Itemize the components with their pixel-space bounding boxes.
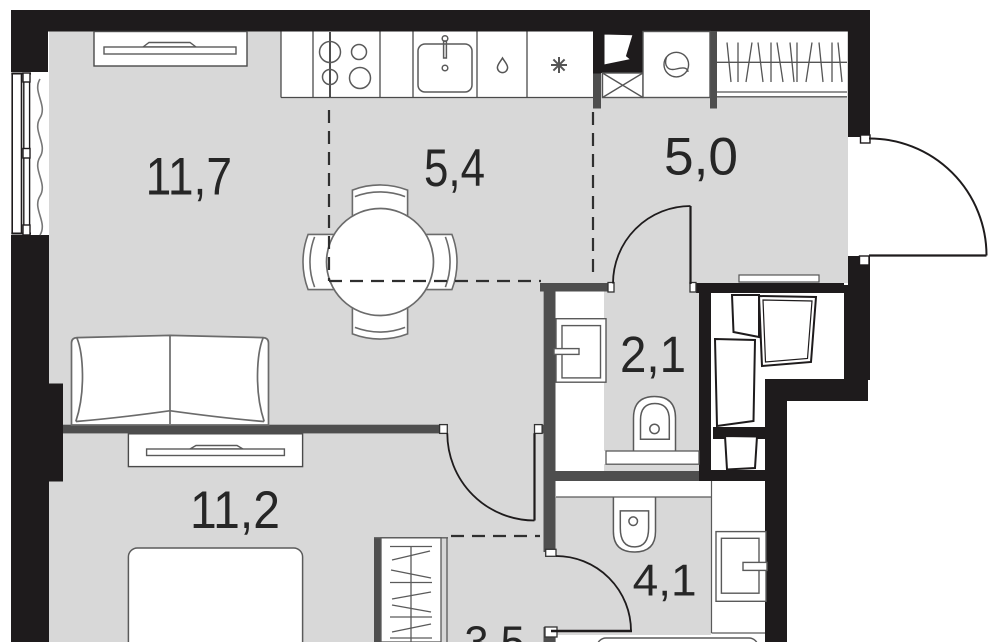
svg-text:11,2: 11,2 (190, 481, 280, 540)
svg-text:5,4: 5,4 (424, 139, 485, 198)
svg-text:4,1: 4,1 (633, 557, 697, 606)
svg-text:3,5: 3,5 (464, 618, 524, 642)
svg-text:2,1: 2,1 (620, 326, 686, 383)
svg-text:5,0: 5,0 (664, 128, 738, 187)
svg-text:11,7: 11,7 (146, 147, 232, 206)
